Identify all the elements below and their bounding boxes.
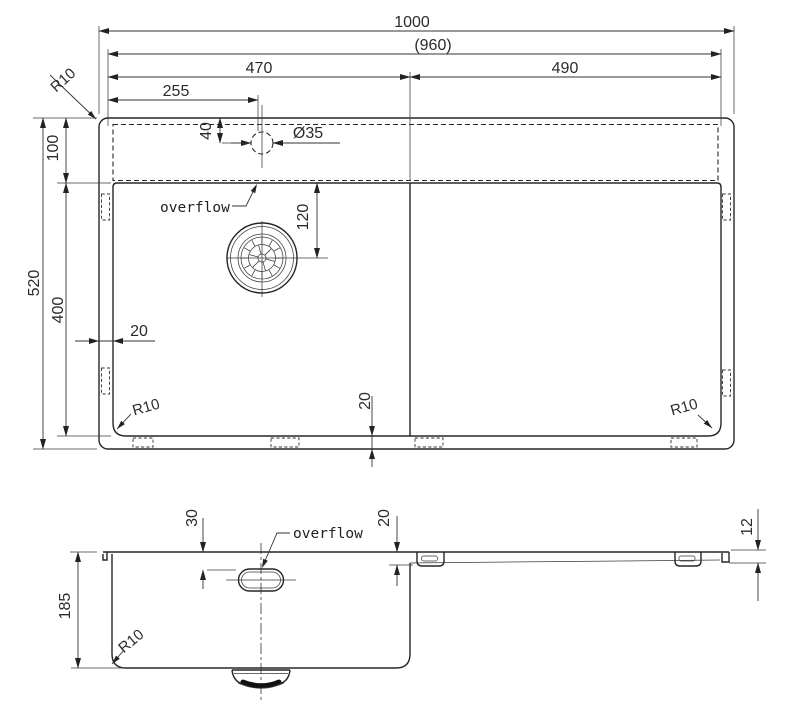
clip-bottom-2 <box>271 438 299 447</box>
overflow-label-front-view: overflow <box>293 526 363 542</box>
top-view: 1000 (960) 470 490 255 Ø35 40 100 520 40… <box>26 14 734 467</box>
dim-faucet-diameter: Ø35 <box>293 125 323 142</box>
dim-deck-depth: 100 <box>45 135 62 162</box>
radius-label-bottomleft: R10 <box>131 396 162 420</box>
dim-board-width: 490 <box>552 60 579 77</box>
dim-overflow-drop: 30 <box>184 509 201 527</box>
dim-bowl-depth-front: 185 <box>57 593 74 620</box>
clip-bottom-4 <box>671 438 697 447</box>
radius-label-topleft: R10 <box>47 65 79 96</box>
sink-technical-drawing: 1000 (960) 470 490 255 Ø35 40 100 520 40… <box>0 0 800 713</box>
drainboard-underside <box>410 560 720 563</box>
front-view: 185 30 20 12 overflow R10 <box>57 509 766 703</box>
clip-left-top <box>102 194 110 220</box>
dim-overall-width: 1000 <box>394 14 430 31</box>
overflow-label-top-view: overflow <box>160 200 230 216</box>
dim-drain-from-overflow: 120 <box>295 204 312 231</box>
dim-side-margin: 20 <box>130 323 148 340</box>
dim-step-front: 20 <box>376 509 393 527</box>
drain-gasket <box>243 682 279 686</box>
dim-faucet-offset: 255 <box>163 83 190 100</box>
dim-overall-depth: 520 <box>26 270 43 297</box>
front-view-dimension-lines <box>78 509 758 668</box>
radius-label-bottomright: R10 <box>669 396 700 420</box>
front-clip-tab-1 <box>417 552 444 566</box>
clip-bottom-1 <box>133 438 153 447</box>
front-clip-slot-1 <box>422 556 438 561</box>
sink-outer-outline <box>99 118 734 449</box>
top-view-leaders <box>50 75 712 429</box>
dim-bowl-depth: 400 <box>50 297 67 324</box>
clip-left-bottom <box>102 368 110 394</box>
top-view-extension-lines <box>33 26 734 449</box>
right-edge-lip <box>722 552 729 562</box>
front-view-extension-lines <box>70 550 766 668</box>
clip-right-bottom <box>723 370 731 396</box>
drawing-canvas: 1000 (960) 470 490 255 Ø35 40 100 520 40… <box>0 0 800 713</box>
dim-bowl-width: 470 <box>246 60 273 77</box>
radius-label-front: R10 <box>115 626 147 657</box>
dim-bottom-margin: 20 <box>357 392 374 410</box>
left-edge-lip <box>103 552 107 560</box>
clip-right-top <box>723 194 731 220</box>
overflow-leader <box>232 186 256 207</box>
drain-top-view <box>226 221 328 297</box>
clip-bottom-3 <box>415 438 443 447</box>
dim-inner-width: (960) <box>414 37 451 54</box>
dim-edge-thickness: 12 <box>739 518 756 536</box>
bowl-and-drainboard-outline <box>113 183 721 436</box>
faucet-hole <box>231 105 340 168</box>
dim-faucet-from-top: 40 <box>198 122 215 140</box>
